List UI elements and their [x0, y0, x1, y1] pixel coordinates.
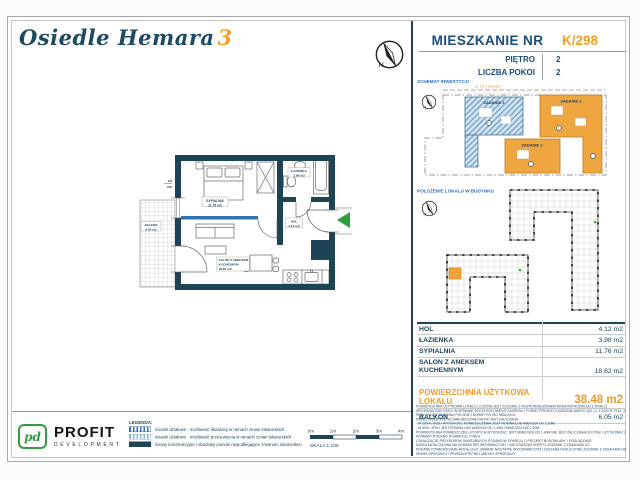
- scale-label: SKALA 1:100: [310, 443, 339, 449]
- movable-wall-swatch: [129, 434, 151, 440]
- toilet: [284, 176, 296, 187]
- room-area: 11.76 m2: [595, 348, 623, 355]
- label-sypialnia: SYPIALNIA 11.76 m2: [202, 197, 228, 207]
- disclaimer: POWIERZCHNIA UŻYTKOWA LOKALU LICZONA JES…: [416, 405, 626, 457]
- removable-wall-swatch: [129, 427, 151, 433]
- site-plan-title: SCHEMAT INWESTYCJI: [417, 79, 469, 84]
- logo-subtitle: DEVELOPMENT: [54, 442, 122, 448]
- table-row: SYPIALNIA 11.76 m2: [417, 347, 625, 358]
- sofa: [196, 224, 234, 238]
- green-marker-1: [519, 269, 522, 272]
- zadanie2b-label: ZADANIE 2: [521, 143, 543, 148]
- room-area: 4.12 m2: [598, 326, 623, 333]
- svg-text:KUCHENNYM: KUCHENNYM: [219, 262, 240, 266]
- svg-text:ŁAZIENKA: ŁAZIENKA: [291, 169, 307, 173]
- wardrobe: [257, 162, 274, 193]
- svg-text:4m: 4m: [398, 429, 405, 434]
- svg-text:4.12 m2: 4.12 m2: [288, 224, 300, 228]
- scale-bar: 0m 1m 2m 3m 4m SKALA 1:100: [306, 427, 406, 451]
- svg-text:6.05 m2: 6.05 m2: [145, 227, 156, 231]
- legend-title: LEGENDA:: [129, 420, 409, 425]
- svg-text:18.62 m2: 18.62 m2: [219, 267, 232, 271]
- svg-text:215: 215: [167, 185, 172, 189]
- table-vline: [542, 322, 543, 399]
- room-area: 3.98 m2: [598, 337, 623, 344]
- window-size-mark: 1/8 215: [164, 179, 172, 189]
- balcony: [140, 200, 175, 287]
- room-name: SYPIALNIA: [419, 348, 455, 356]
- room-name: HOL: [419, 326, 433, 334]
- site-plan: SCHEMAT INWESTYCJI ul. M. Hemara ZADANIE…: [413, 76, 627, 184]
- zadanie1-label: ZADANIE 1: [483, 100, 505, 105]
- svg-text:2m: 2m: [353, 429, 360, 434]
- location-plan-title: POŁOŻENIE LOKALU W BUDYNKU: [417, 188, 494, 194]
- building-zadanie-2b: ZADANIE 2: [505, 139, 560, 173]
- svg-text:SYPIALNIA: SYPIALNIA: [206, 199, 224, 203]
- kitchen-counter: [283, 270, 329, 284]
- floor-plan: SYPIALNIA 11.76 m2 ŁAZIENKA 3.98 m2 HOL …: [0, 60, 412, 412]
- svg-text:0m: 0m: [308, 429, 315, 434]
- removable-partition: [181, 216, 258, 220]
- table-row: HOL 4.12 m2: [417, 324, 625, 335]
- room-name: SALON Z ANEKSEM KUCHENNYM: [419, 359, 489, 375]
- kitchen-sink: [305, 273, 318, 282]
- room-name: ŁAZIENKA: [419, 337, 453, 345]
- header-rule: [419, 51, 626, 52]
- svg-text:1/8: 1/8: [168, 179, 173, 183]
- label-balkon: BALKON 6.05 m2: [141, 222, 161, 232]
- page-title: Osiedle Hemara3: [19, 25, 233, 50]
- street-label: ul. M. Hemara: [475, 84, 501, 89]
- estate-name: Osiedle Hemara: [19, 25, 215, 50]
- apartment-number-label: MIESZKANIE NR: [420, 33, 555, 48]
- logo-monogram: pd: [18, 424, 47, 449]
- floor-label: PIĘTRO: [413, 55, 535, 64]
- svg-text:HOL: HOL: [291, 219, 298, 223]
- building-outline-left: [447, 255, 528, 312]
- label-salon: SALON Z ANEKSEM KUCHENNYM 18.62 m2: [217, 257, 250, 271]
- zadanie2a-label: ZADANIE 2: [560, 99, 582, 104]
- shaft: [311, 240, 329, 260]
- label-lazienka: ŁAZIENKA 3.98 m2: [288, 168, 310, 178]
- table-row: SALON Z ANEKSEM KUCHENNYM 18.62 m2: [417, 358, 625, 377]
- svg-text:3m: 3m: [376, 429, 383, 434]
- developer-logo: pd PROFIT DEVELOPMENT: [18, 424, 122, 449]
- green-marker-2: [594, 221, 597, 224]
- svg-text:11.76 m2: 11.76 m2: [208, 203, 222, 207]
- building-location-plan: POŁOŻENIE LOKALU W BUDYNKU: [413, 186, 627, 315]
- label-hol: HOL 4.12 m2: [286, 218, 303, 228]
- entrance-arrow-icon: [337, 212, 350, 228]
- coffee-table: [205, 246, 226, 254]
- nightstand-right: [245, 162, 252, 169]
- site-compass-icon: [422, 95, 436, 109]
- structural-wall-swatch: [129, 442, 151, 448]
- total-area-label: POWIERZCHNIA UŻYTKOWA LOKALU: [419, 388, 549, 406]
- logo-name: PROFIT: [54, 425, 122, 440]
- svg-text:1m: 1m: [330, 429, 337, 434]
- svg-text:3.98 m2: 3.98 m2: [293, 173, 305, 177]
- location-compass-icon: [422, 201, 436, 216]
- room-area: 18.62 m2: [595, 368, 623, 375]
- apartment-number-value: K/298: [562, 33, 624, 48]
- floor-value: 2: [556, 55, 586, 64]
- bed: [204, 166, 243, 200]
- highlighted-unit: [449, 268, 461, 279]
- nightstand-left: [196, 162, 203, 169]
- table-row: ŁAZIENKA 3.98 m2: [417, 335, 625, 346]
- svg-text:BALKON: BALKON: [145, 223, 158, 227]
- bathtub: [314, 157, 329, 194]
- estate-number: 3: [215, 25, 233, 50]
